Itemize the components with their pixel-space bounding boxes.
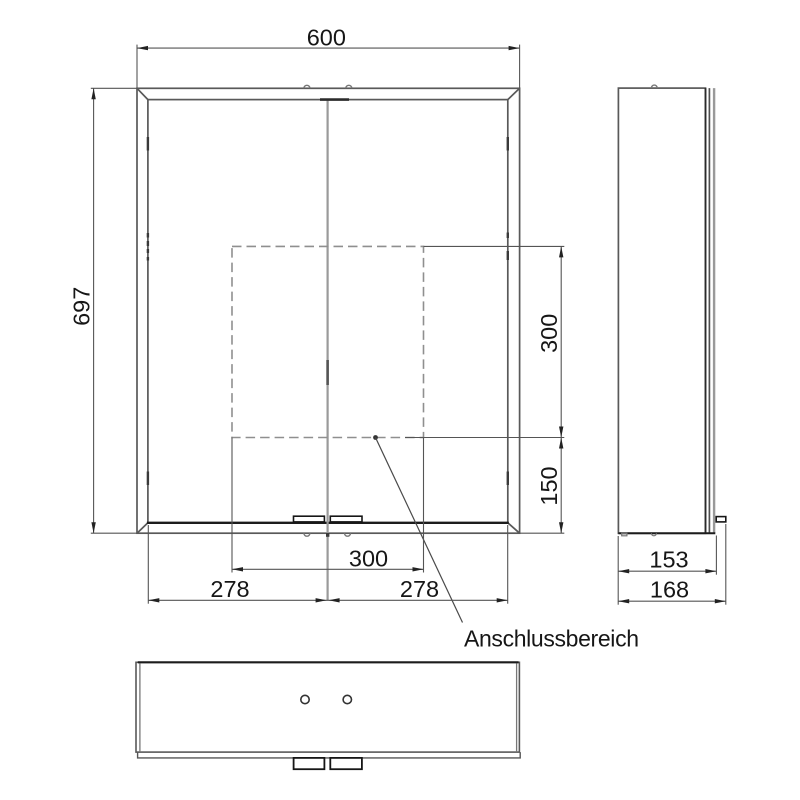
svg-text:600: 600 xyxy=(307,25,346,51)
svg-text:300: 300 xyxy=(349,546,388,572)
svg-text:Anschlussbereich: Anschlussbereich xyxy=(464,626,639,652)
svg-text:168: 168 xyxy=(650,577,689,603)
svg-text:697: 697 xyxy=(68,287,94,326)
svg-text:150: 150 xyxy=(536,466,562,505)
svg-text:278: 278 xyxy=(210,576,249,602)
svg-text:300: 300 xyxy=(536,314,562,353)
svg-text:278: 278 xyxy=(400,576,439,602)
svg-text:153: 153 xyxy=(649,547,688,573)
